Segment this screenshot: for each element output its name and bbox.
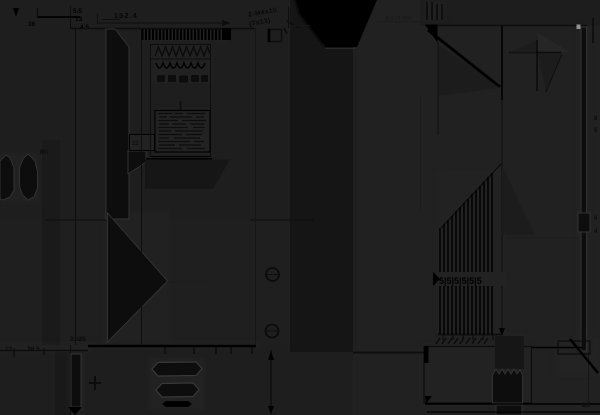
svg-text:38.5: 38.5 — [27, 346, 40, 353]
svg-text:13: 13 — [75, 16, 83, 23]
svg-text:8.5: 8.5 — [582, 403, 591, 409]
svg-text:152.4: 152.4 — [114, 11, 138, 20]
svg-text:2xØ5: 2xØ5 — [70, 336, 86, 343]
svg-text:22: 22 — [132, 141, 139, 147]
svg-text:4.5: 4.5 — [80, 24, 89, 31]
svg-text:Ø6: Ø6 — [40, 150, 49, 156]
svg-text:5|5|5|5|5|5: 5|5|5|5|5|5 — [439, 276, 482, 286]
svg-text:36: 36 — [28, 21, 36, 28]
svg-text:12: 12 — [5, 346, 13, 353]
svg-text:5.5: 5.5 — [73, 8, 82, 15]
svg-text:AIR FLOW: AIR FLOW — [385, 16, 412, 22]
